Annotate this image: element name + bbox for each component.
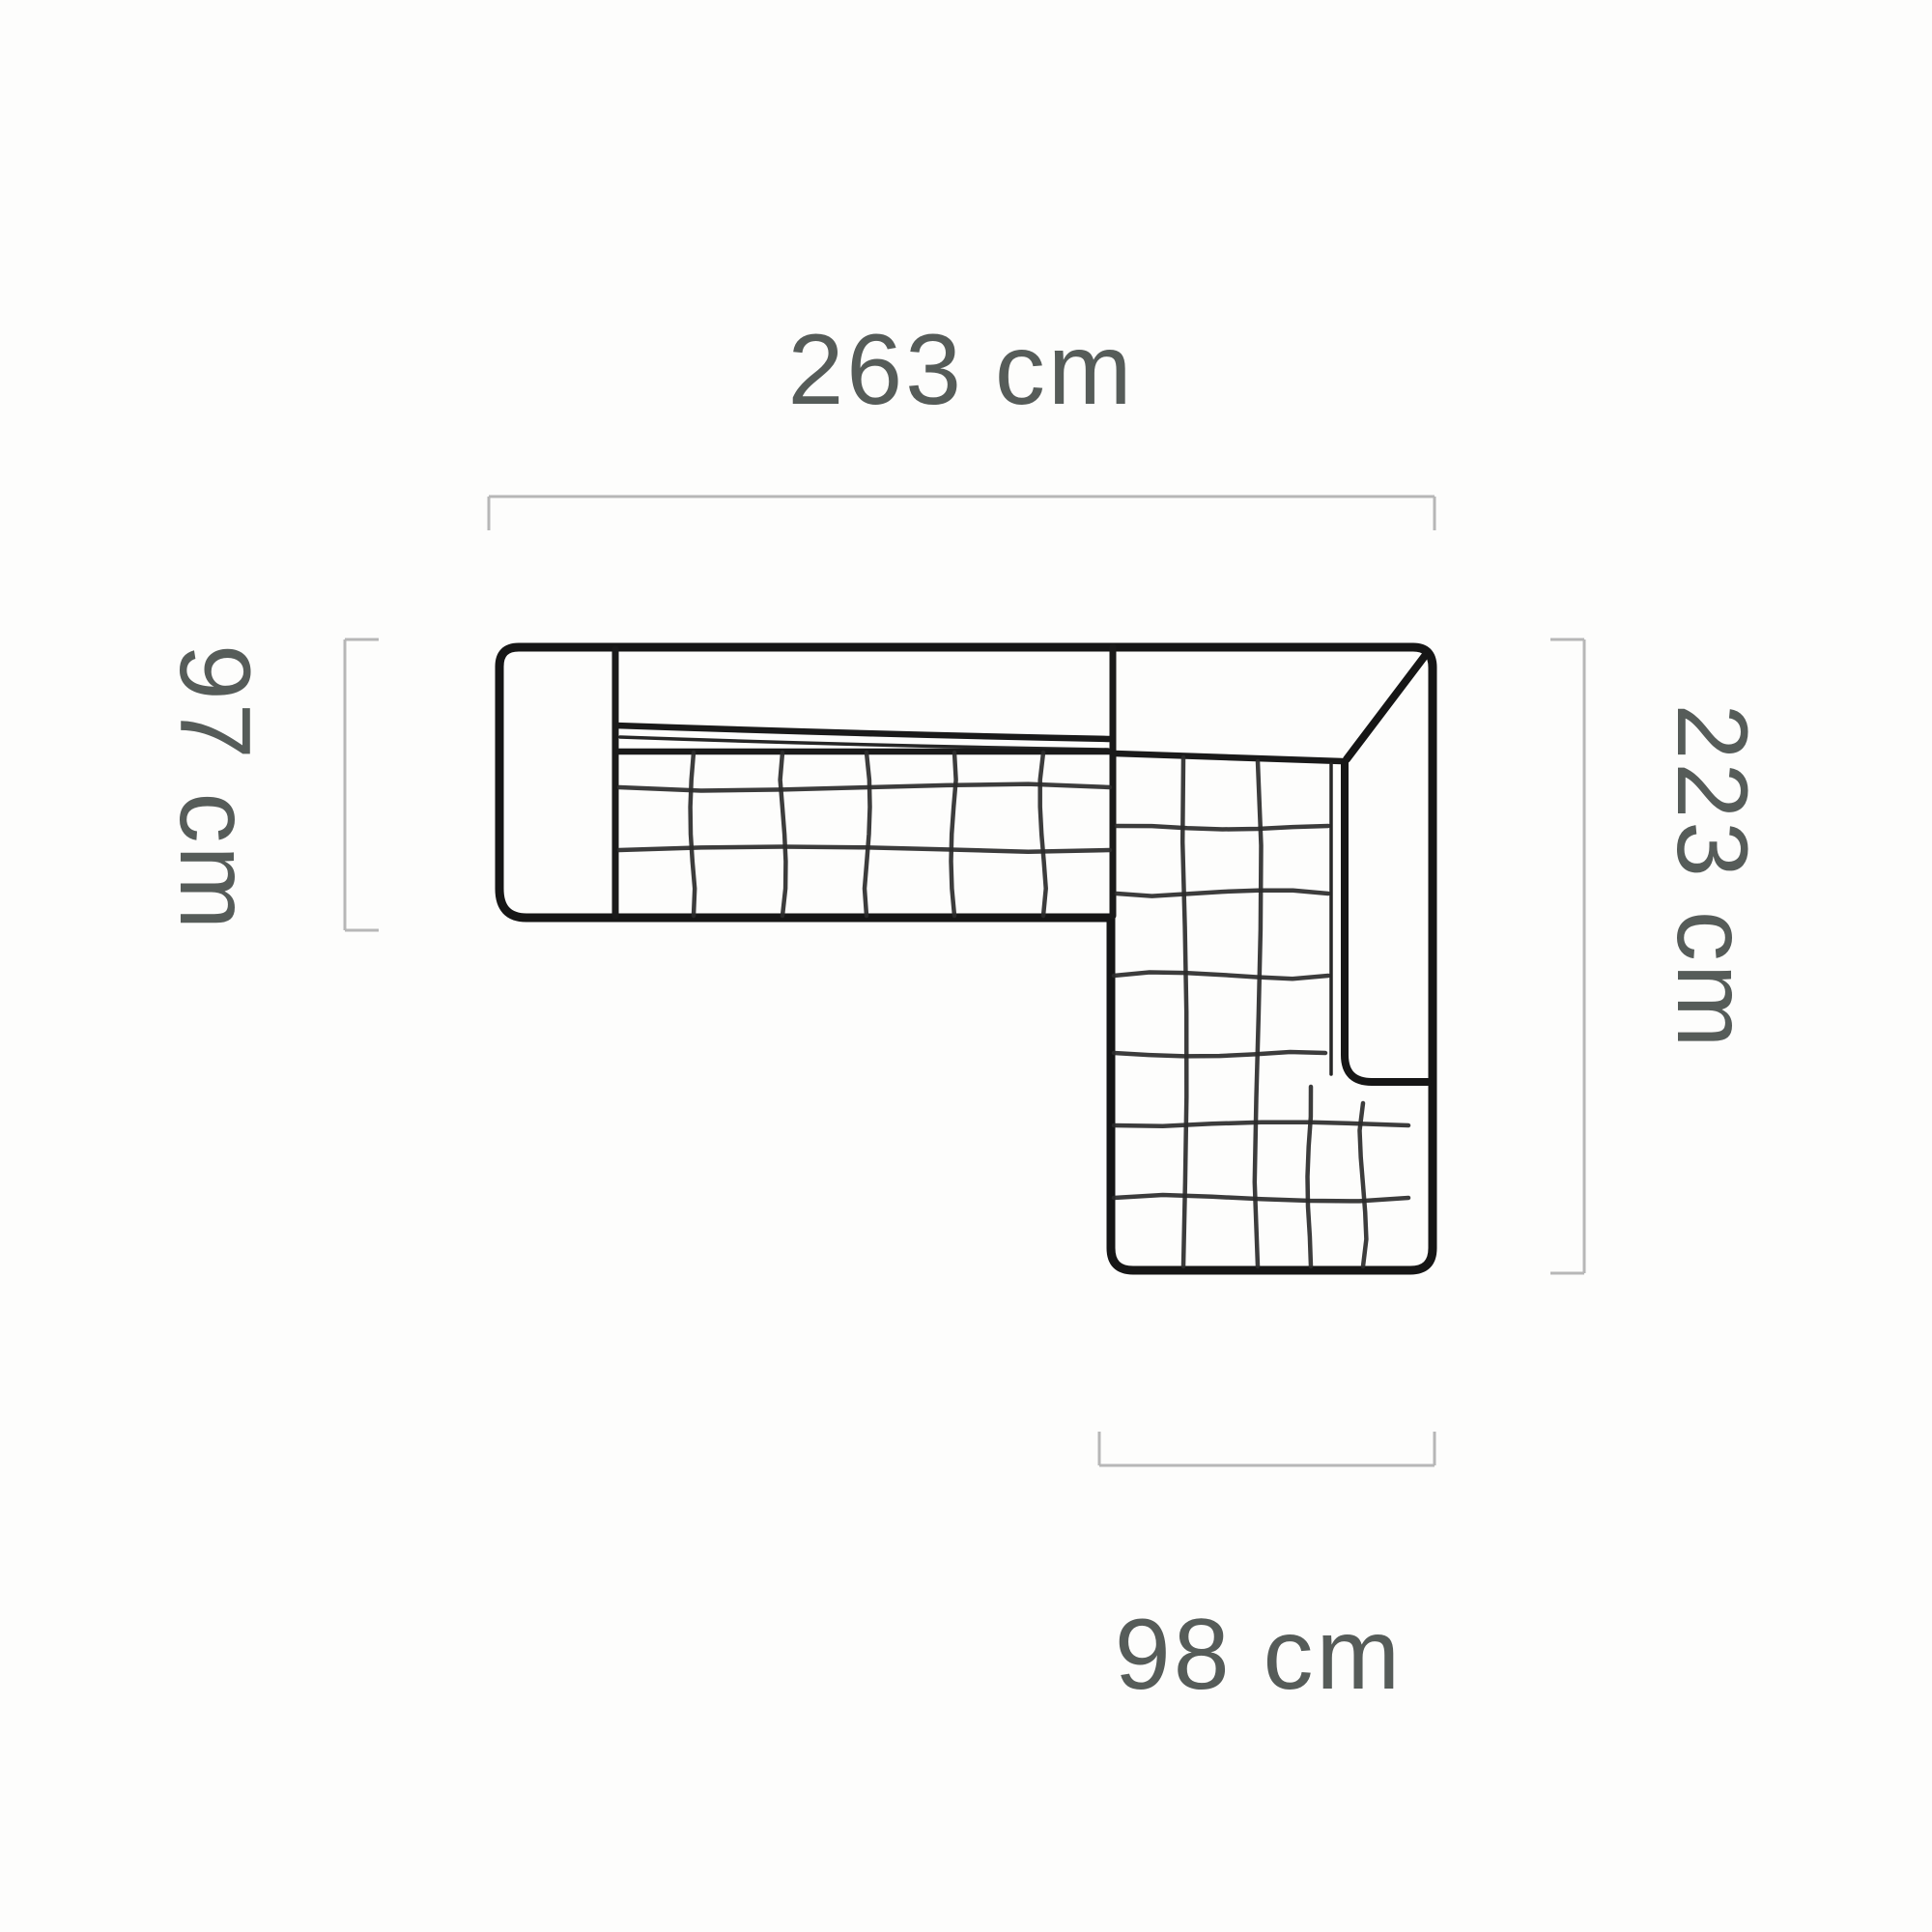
dimension-top-group: 263 cm	[489, 314, 1435, 530]
dimension-label-right: 223 cm	[1656, 703, 1768, 1050]
quilt-seam-line	[1114, 1122, 1408, 1126]
diagram-svg: 263 cm 97 cm 223 cm 98 cm	[0, 0, 1932, 1932]
dimension-line-top	[489, 497, 1435, 530]
quilt-seam-line	[691, 753, 696, 916]
dimension-line-bottom	[1099, 1432, 1435, 1465]
sofa-dimension-diagram: 263 cm 97 cm 223 cm 98 cm	[0, 0, 1932, 1932]
quilt-seam-line	[1255, 761, 1262, 1266]
corner-diagonal-seam	[1347, 652, 1428, 759]
corner-top-edge	[1115, 753, 1342, 761]
quilt-seam-line	[865, 753, 870, 916]
dimension-line-left	[345, 639, 379, 930]
dimension-left-group: 97 cm	[158, 639, 379, 932]
quilt-seam-line	[952, 753, 956, 916]
sofa-drawing	[499, 647, 1433, 1270]
quilt-grid	[619, 753, 1408, 1266]
dimension-line-right	[1550, 639, 1584, 1273]
quilt-seam-line	[1117, 891, 1328, 896]
quilt-seam-line	[1308, 1087, 1312, 1266]
dimension-label-top: 263 cm	[787, 314, 1134, 426]
quilt-seam-line	[1114, 1052, 1325, 1056]
dimension-right-group: 223 cm	[1550, 639, 1768, 1273]
right-backrest-inner-edge	[1345, 762, 1428, 1082]
sofa-outer-outline	[499, 647, 1433, 1270]
quilt-seam-line	[1182, 757, 1186, 1266]
quilt-seam-line	[781, 753, 786, 916]
quilt-seam-line	[1360, 1103, 1367, 1266]
dimension-label-bottom: 98 cm	[1115, 1599, 1403, 1711]
dimension-label-left: 97 cm	[158, 644, 270, 932]
quilt-seam-line	[1040, 753, 1046, 916]
quilt-seam-line	[1114, 973, 1328, 980]
backrest-front-edge	[615, 725, 1111, 739]
dimension-bottom-group: 98 cm	[1099, 1432, 1435, 1711]
quilt-seam-line	[1117, 826, 1328, 830]
